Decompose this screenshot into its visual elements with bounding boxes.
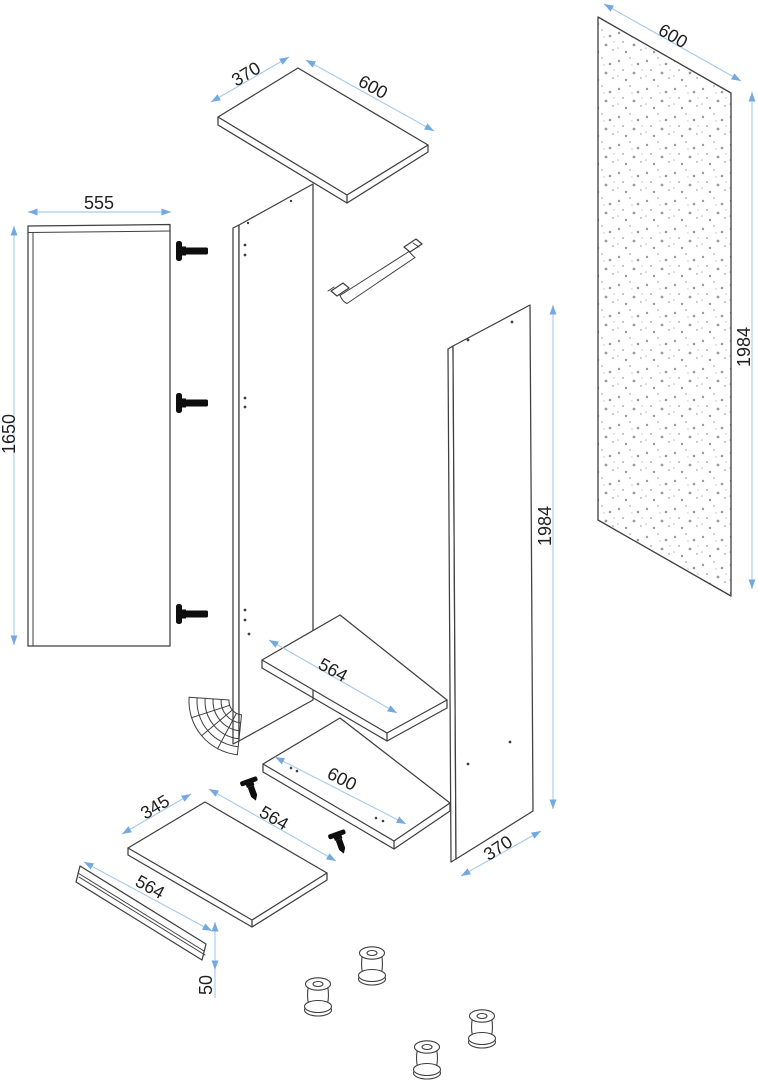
dim-back-height-label: 1984 [734, 327, 754, 367]
dimension-plinth-height: 50 [196, 922, 216, 998]
back-panel [598, 17, 731, 596]
hanging-rail [328, 239, 422, 304]
dim-back-width-label: 600 [655, 20, 691, 52]
dimension-door-width: 555 [28, 193, 171, 213]
dimension-door-height: 1650 [0, 226, 19, 645]
right-side-panel [448, 305, 533, 862]
adjustable-foot-2 [359, 947, 386, 985]
top-panel [218, 68, 428, 203]
hinge-screw-middle [176, 393, 208, 413]
dim-bottom-depth-label: 345 [137, 791, 173, 824]
dimension-side-panel-height: 1984 [535, 305, 555, 809]
dim-side-height-label: 1984 [535, 506, 555, 546]
dim-top-width-label: 600 [355, 71, 391, 103]
hinge-screw-top [176, 241, 208, 261]
dim-bottom-width-label: 564 [256, 802, 292, 834]
hinge-screw-bottom [176, 604, 208, 624]
dim-door-width-label: 555 [84, 193, 114, 213]
bottom-panel [128, 802, 327, 927]
adjustable-foot-1 [305, 978, 332, 1016]
adjustable-foot-4 [469, 1010, 496, 1048]
assembly-diagram: 370 600 555 1650 600 1984 1984 370 564 6… [0, 0, 758, 1080]
connector-bolt-left [240, 776, 265, 804]
dimension-back-panel-height: 1984 [734, 92, 754, 589]
adjustable-foot-3 [414, 1041, 441, 1079]
dim-top-depth-label: 370 [228, 58, 264, 91]
dim-plinth-height-label: 50 [196, 975, 216, 995]
connector-bolt-right [328, 829, 353, 857]
dim-door-height-label: 1650 [0, 414, 19, 454]
diagram-svg: 370 600 555 1650 600 1984 1984 370 564 6… [0, 0, 758, 1080]
door-panel [28, 225, 170, 647]
